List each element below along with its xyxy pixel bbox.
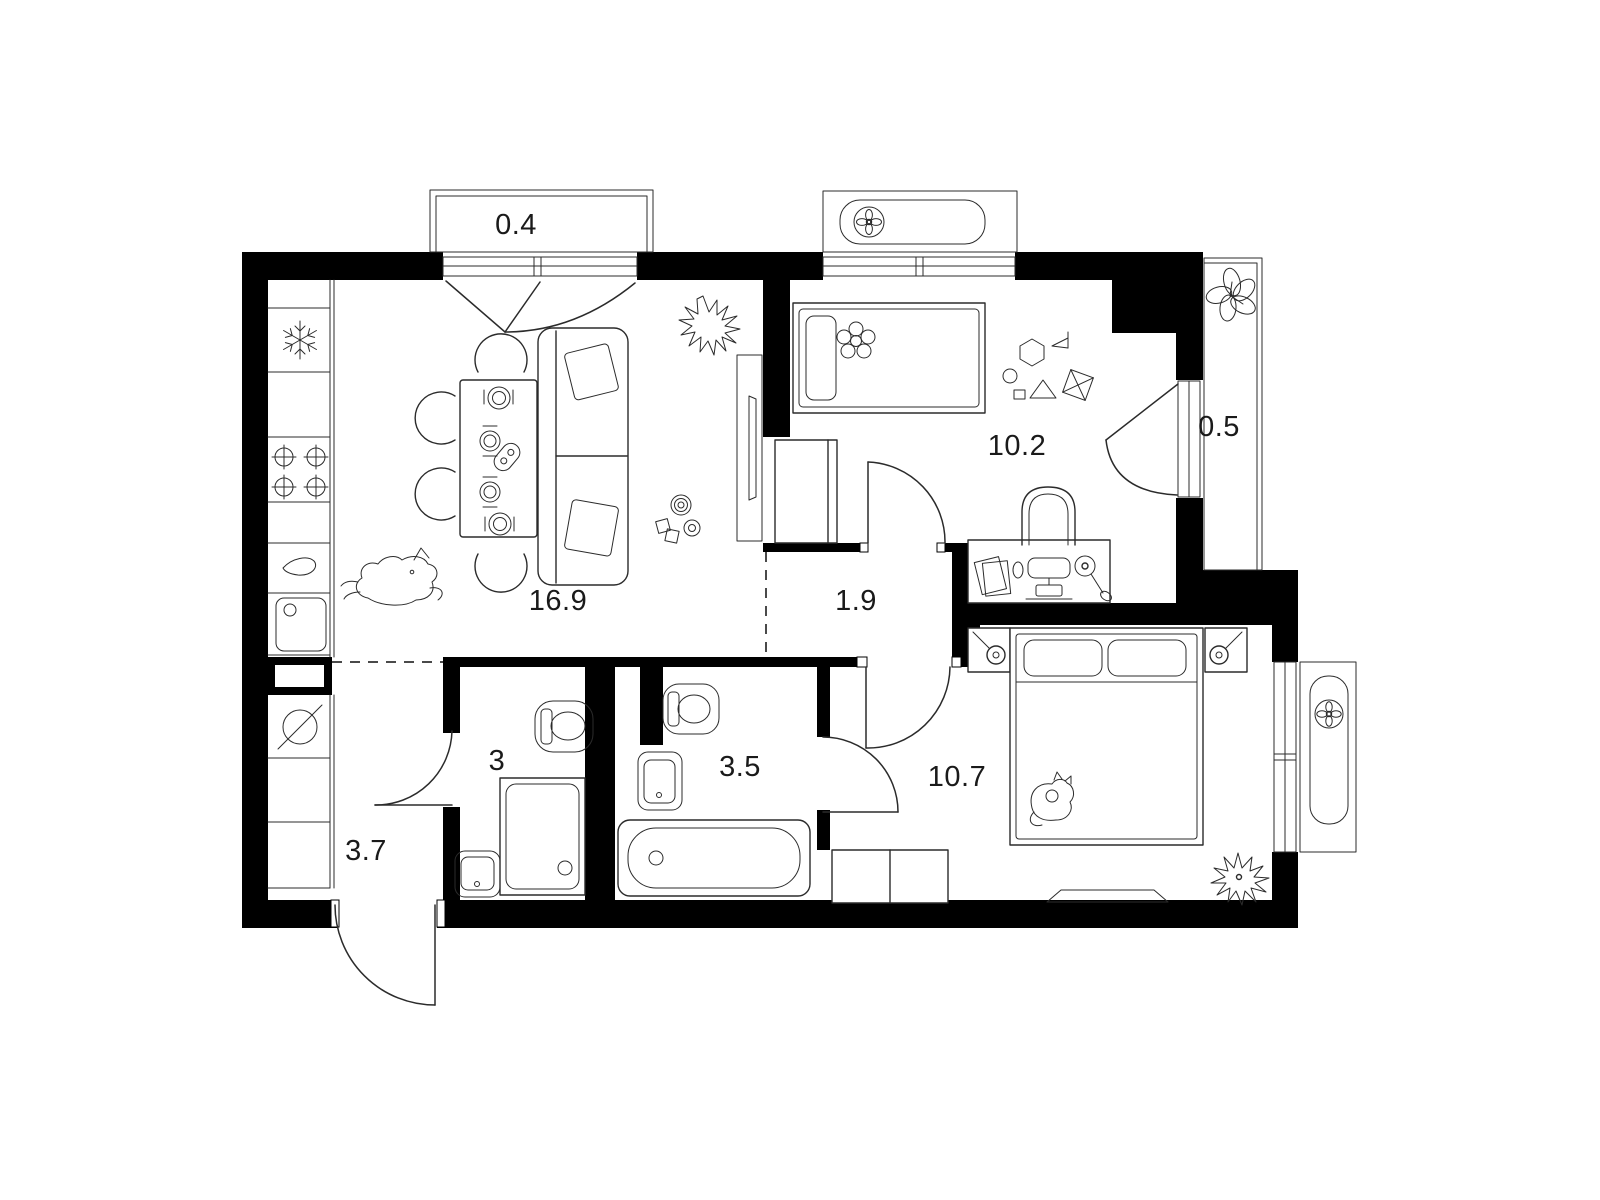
room-label-master-bedroom: 10.7 [928, 761, 986, 793]
ac-unit-top-icon [823, 191, 1017, 252]
desk-chair [1022, 487, 1075, 545]
sofa [538, 328, 628, 585]
room-label-hallway: 1.9 [835, 585, 877, 617]
dog-icon [341, 548, 442, 605]
room-label-balcony-right: 0.5 [1198, 411, 1240, 443]
floor-plan-drawing: 0.4 10.2 0.5 16.9 1.9 3 3.5 3.7 10.7 [0, 0, 1600, 1200]
nightstand-left [968, 628, 1010, 672]
sink-small-icon [455, 851, 500, 897]
ac-unit-right-icon [1300, 662, 1356, 852]
plant-living-icon [679, 296, 740, 355]
room-label-child-bedroom: 10.2 [988, 430, 1046, 462]
window-master-bedroom [1274, 662, 1296, 852]
wardrobe-master [832, 850, 948, 903]
shower [500, 778, 585, 895]
fridge-icon [281, 321, 319, 359]
door-child-bedroom [868, 462, 945, 543]
double-bed [1010, 628, 1203, 845]
bathtub [618, 820, 810, 896]
balcony-top [430, 190, 653, 252]
dining-table [415, 334, 537, 592]
room-label-balcony-top: 0.4 [495, 209, 537, 241]
room-label-living-kitchen: 16.9 [529, 585, 587, 617]
toys-child-icon [1003, 332, 1093, 400]
room-label-bathroom-large: 3.5 [719, 751, 761, 783]
desk [968, 540, 1113, 603]
tv-unit-living [737, 355, 762, 541]
kitchen-sink-icon [276, 598, 326, 651]
window-balcony-right-door [1106, 381, 1200, 497]
window-child-bedroom [823, 257, 1015, 276]
single-bed [793, 303, 985, 413]
toys-living-icon [656, 495, 700, 543]
window-living-balcony [443, 257, 637, 332]
toilet-small-icon [535, 701, 593, 752]
nightstand-right [1205, 628, 1247, 672]
kitchen-counter [268, 280, 334, 888]
plant-master-icon [1211, 853, 1269, 905]
stove-icon [272, 445, 328, 499]
door-bathroom-small [375, 731, 452, 805]
cutting-board-icon [283, 558, 316, 575]
plant-balcony-icon [1204, 266, 1258, 321]
door-master-bedroom [866, 667, 950, 748]
sink-large-icon [638, 752, 682, 810]
wardrobe-child [775, 440, 837, 543]
room-label-bathroom-small: 3 [489, 745, 506, 777]
door-bathroom-large [823, 737, 898, 812]
entrance-door [335, 905, 435, 1005]
washing-machine-icon [278, 705, 322, 749]
floor-plan-page: 0.4 10.2 0.5 16.9 1.9 3 3.5 3.7 10.7 [0, 0, 1600, 1200]
room-label-entrance-hall: 3.7 [345, 835, 387, 867]
toilet-large-icon [663, 684, 719, 734]
